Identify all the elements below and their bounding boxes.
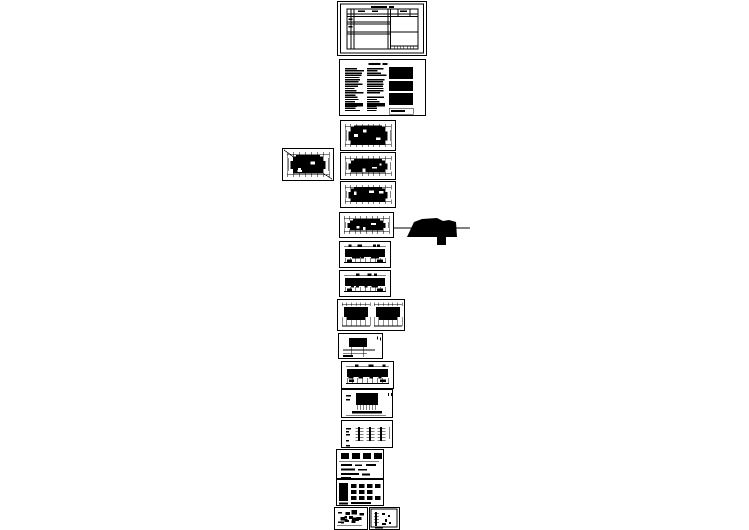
sheet-detail-blocks [336, 449, 384, 479]
sheet-detail-2 [341, 389, 393, 418]
sheet-site-plan-left-drawing [283, 149, 333, 180]
sheet-floor-plan-2-drawing [341, 153, 395, 179]
sheet-drawing-index-table [337, 1, 427, 56]
sheet-detail-2-drawing [342, 390, 392, 417]
sheet-roof-plan-drawing [340, 213, 393, 237]
sheet-detail-1 [338, 333, 383, 359]
sheet-elevation-2-drawing [340, 271, 390, 296]
sheet-floor-plan-1-drawing [341, 121, 395, 150]
cad-thumbnail-canvas [0, 0, 749, 530]
sheet-detail-legend [336, 479, 384, 506]
sheet-elevation-3-drawing [342, 362, 393, 388]
sheet-detail-1-drawing [339, 334, 382, 358]
sheet-sections [337, 299, 405, 331]
sheet-drawing-index-table-drawing [338, 2, 426, 55]
sheet-floor-plan-3 [340, 181, 396, 208]
sheet-site-plan-left [282, 148, 334, 181]
sheet-roof-plan [339, 212, 394, 238]
sheet-design-notes-drawing [340, 60, 425, 115]
sheet-detail-dense [334, 507, 368, 530]
sheet-detail-blocks-drawing [337, 450, 383, 478]
sheet-elevation-2 [339, 270, 391, 297]
sheet-stair-details [341, 420, 393, 448]
sheet-sections-drawing [338, 300, 404, 330]
sheet-elevation-1-drawing [340, 242, 390, 267]
sheet-detail-panel-drawing [370, 508, 399, 529]
sheet-floor-plan-2 [340, 152, 396, 180]
roof-section-silhouette-shape [394, 214, 470, 246]
sheet-detail-legend-drawing [337, 480, 383, 505]
sheet-floor-plan-1 [340, 120, 396, 151]
sheet-elevation-1 [339, 241, 391, 268]
sheet-elevation-3 [341, 361, 394, 389]
sheet-detail-dense-drawing [335, 508, 367, 529]
sheet-floor-plan-3-drawing [341, 182, 395, 207]
roof-section-silhouette [394, 214, 470, 250]
sheet-stair-details-drawing [342, 421, 392, 447]
sheet-detail-panel [369, 507, 400, 530]
sheet-design-notes [339, 59, 426, 116]
